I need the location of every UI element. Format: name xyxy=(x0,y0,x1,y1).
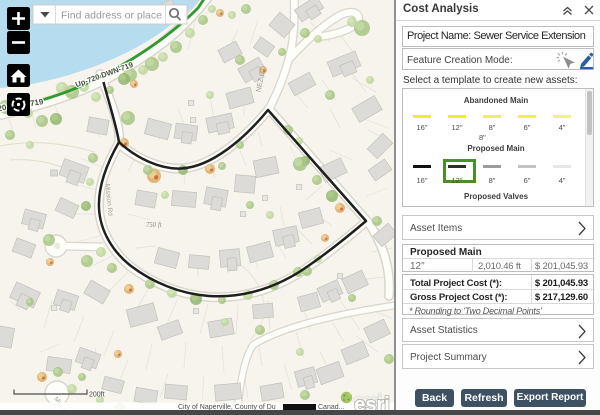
svg-text:200ft: 200ft xyxy=(89,392,105,399)
svg-text:750 ft: 750 ft xyxy=(146,222,163,229)
svg-text:Find address or place: Find address or place xyxy=(61,10,162,22)
